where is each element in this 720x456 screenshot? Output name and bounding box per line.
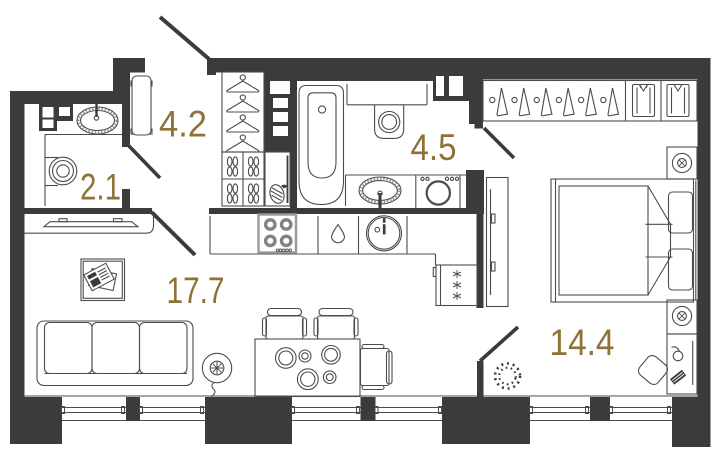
svg-text:14.4: 14.4 <box>550 321 615 363</box>
svg-text:2.1: 2.1 <box>80 166 121 208</box>
svg-text:17.7: 17.7 <box>167 269 225 311</box>
svg-text:4.5: 4.5 <box>411 126 457 168</box>
svg-text:4.2: 4.2 <box>159 103 207 145</box>
